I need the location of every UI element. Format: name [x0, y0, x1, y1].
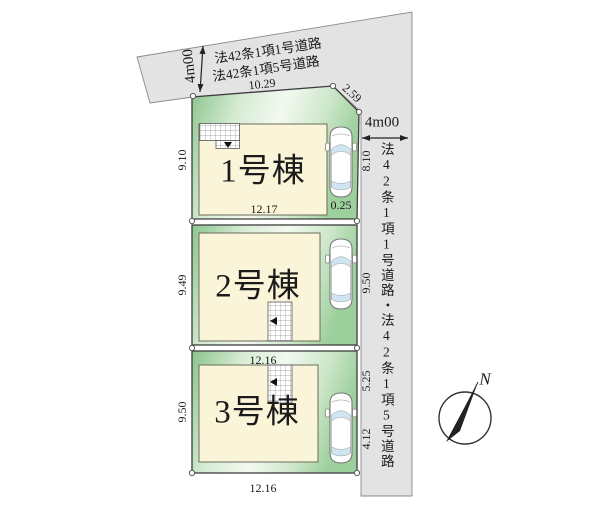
lot-2-dim-bottom: 12.16: [250, 354, 277, 366]
site-plan-drawing: [0, 0, 600, 519]
lot-1-dim-corner: 0.25: [331, 199, 352, 211]
compass-icon: [439, 382, 491, 444]
road-right-width-label: 4m00: [365, 116, 399, 131]
lot-2-label: 2号棟: [215, 271, 301, 304]
lot-1-dim-right: 8.10: [360, 151, 372, 172]
lot-1-label: 1号棟: [220, 156, 306, 189]
car-icon: [326, 393, 357, 463]
lot-3-dim-right-upper: 5.25: [360, 371, 372, 392]
lot-2-dim-left: 9.49: [176, 275, 188, 296]
car-icon: [326, 127, 357, 197]
lot-3-dim-left: 9.50: [176, 402, 188, 423]
lot-3-label: 3号棟: [214, 397, 300, 430]
road-top-frontage-dim: 10.29: [248, 77, 276, 92]
site-plan: 法42条1項1号道路 法42条1項5号道路 4m00 10.29 2.59 4m…: [0, 0, 600, 519]
lot-1-dim-left: 9.10: [176, 150, 188, 171]
compass-north-label: N: [479, 371, 490, 388]
lot-3-dim-right-lower: 4.12: [360, 429, 372, 450]
road-right-name: 法42条1項1号道路・法42条1項5号道路: [378, 142, 393, 469]
lot-2-dim-right: 9.50: [360, 273, 372, 294]
lot-2-porch: [268, 302, 292, 341]
car-icon: [326, 239, 357, 309]
lot-3-dim-bottom: 12.16: [250, 482, 277, 494]
lot-1-dim-bottom: 12.17: [251, 203, 278, 215]
